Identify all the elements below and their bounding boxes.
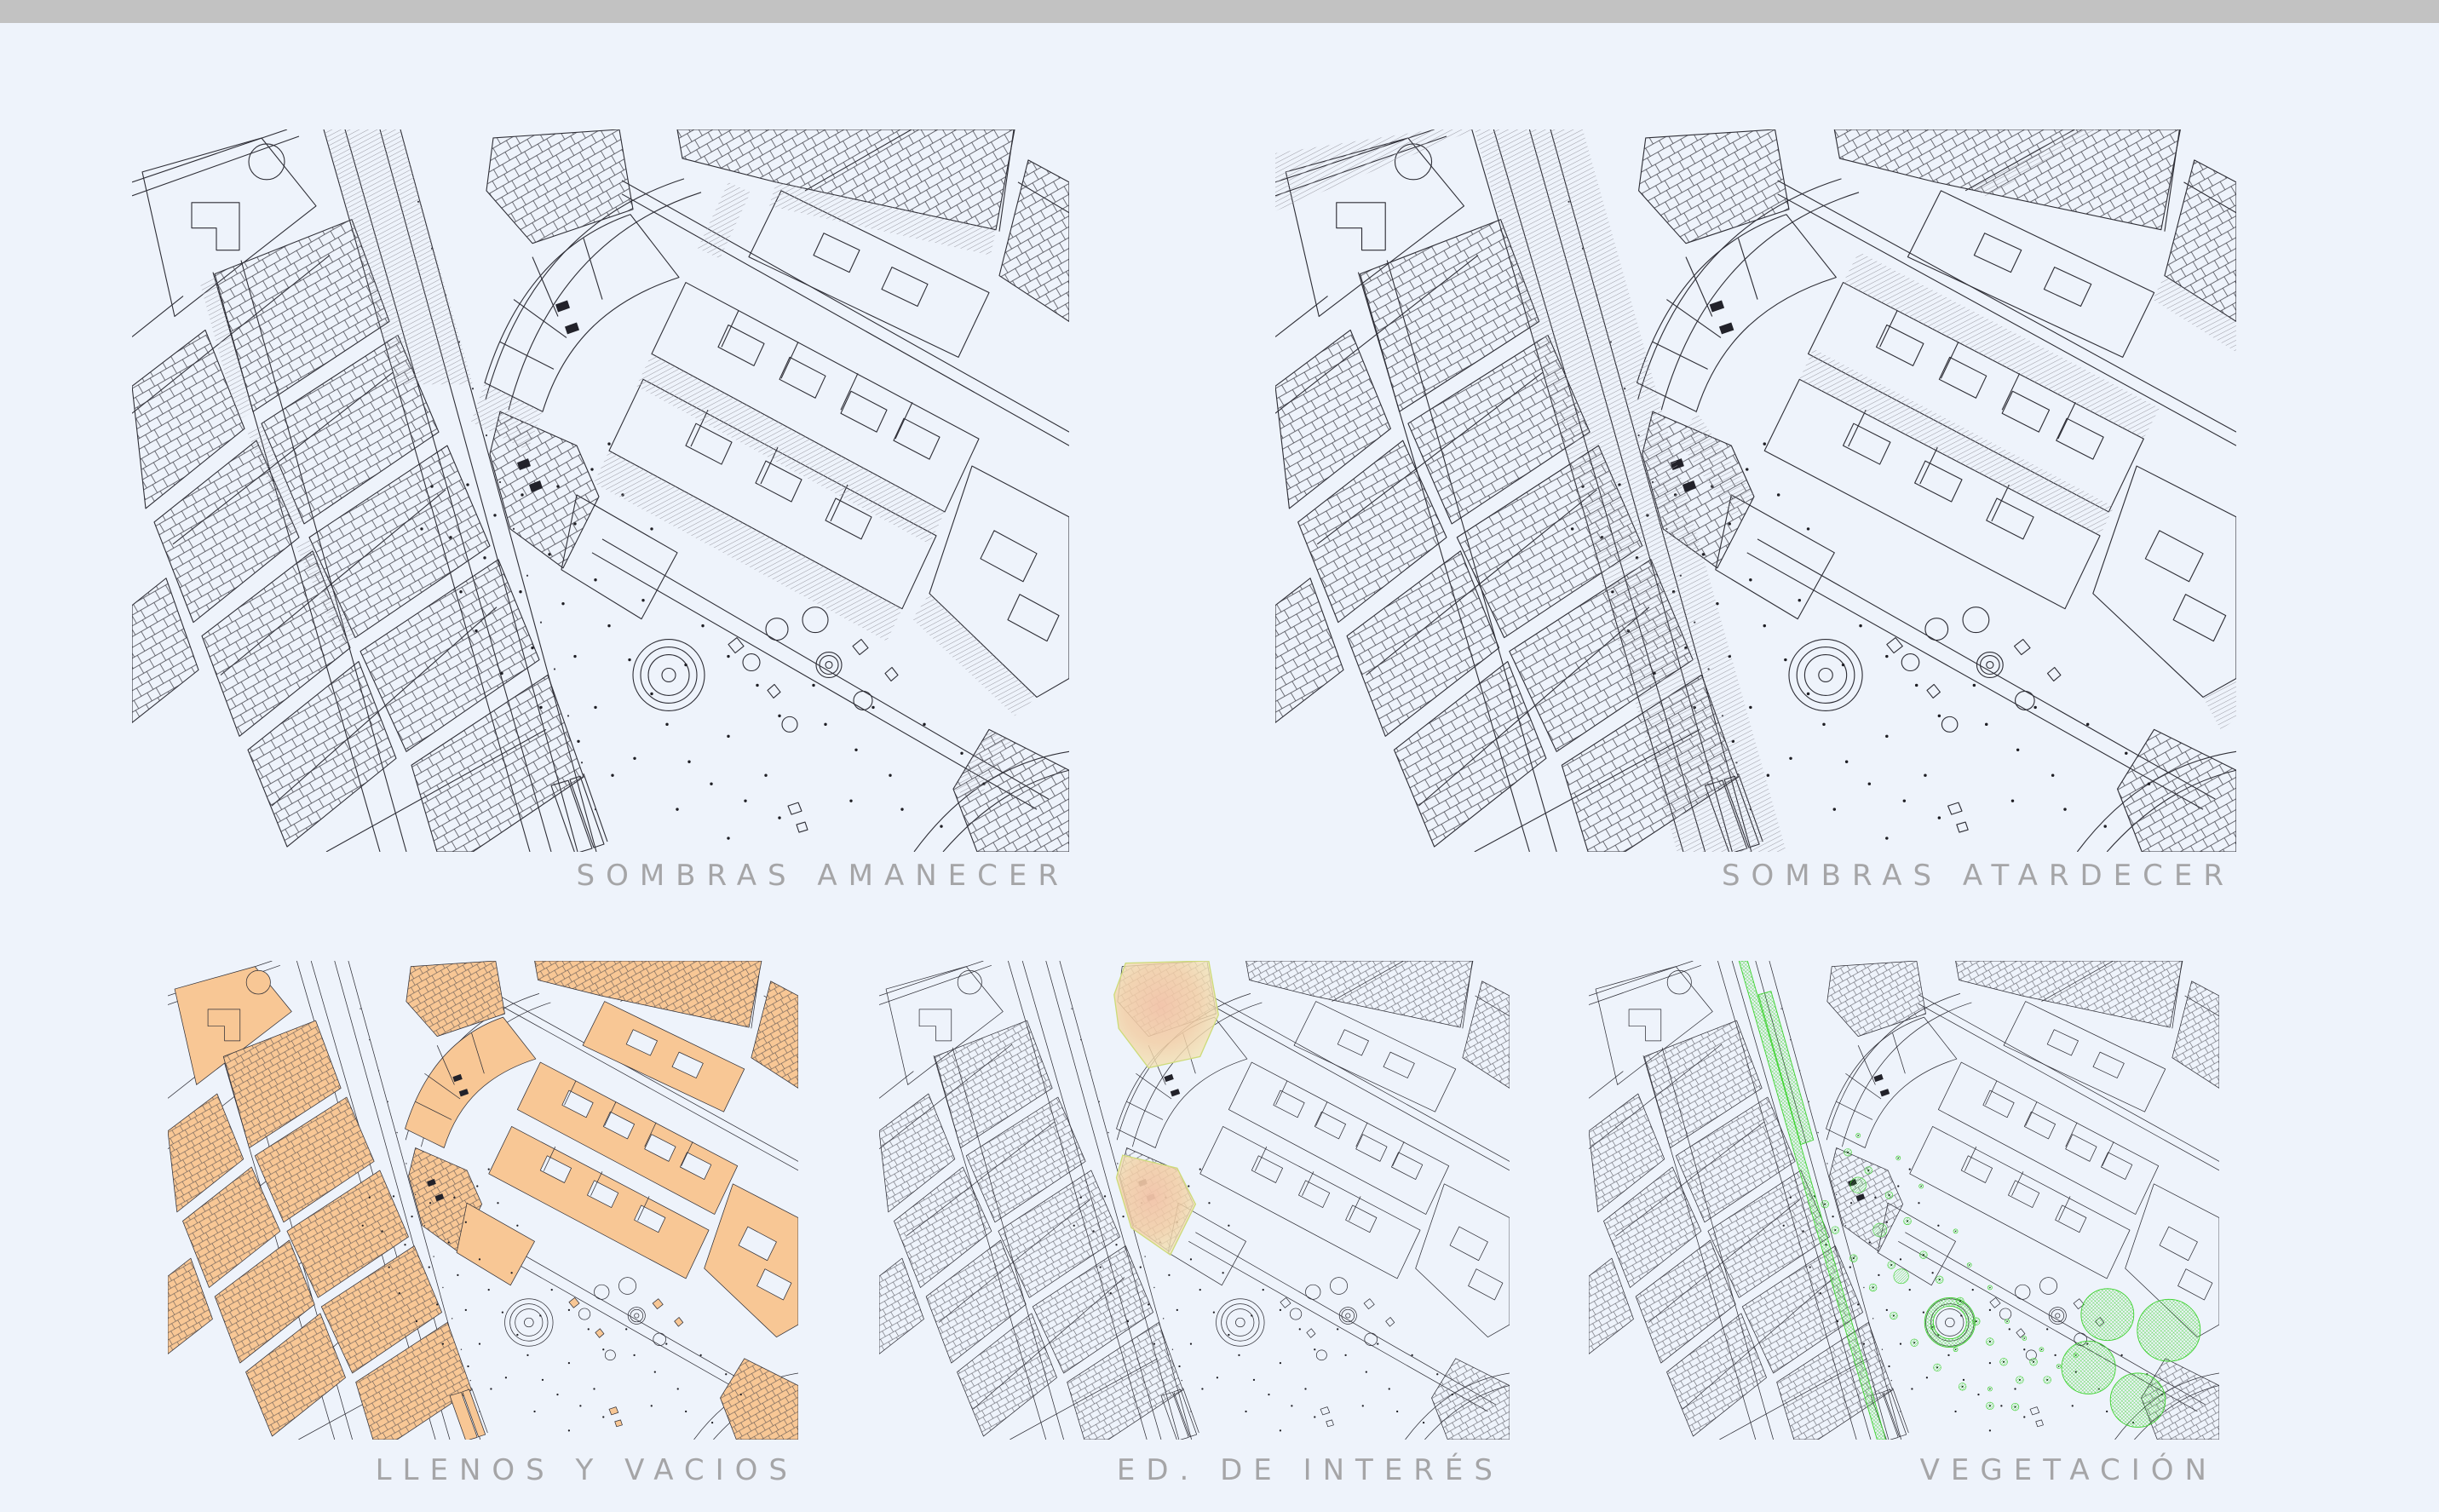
panel-title-sombras-amanecer: SOMBRAS AMANECER (576, 859, 1069, 893)
highlight-instance (1114, 961, 1218, 1255)
map-panel-sombras-amanecer (132, 129, 1069, 852)
map-panel-vegetacion (1589, 961, 2219, 1440)
analysis-sheet: SOMBRAS AMANECER SOMBRAS ATARDECER LLENO… (0, 0, 2439, 1512)
map-panel-sombras-atardecer (1275, 129, 2236, 852)
top-gray-bar (0, 0, 2439, 23)
base-map-instance (168, 961, 798, 1440)
map-panel-ed-de-interes (879, 961, 1510, 1440)
panel-title-vegetacion: VEGETACIÓN (1920, 1453, 2218, 1487)
map-panel-llenos-y-vacios (168, 961, 798, 1440)
base-map-instance (1589, 961, 2219, 1440)
panel-title-sombras-atardecer: SOMBRAS ATARDECER (1722, 859, 2235, 893)
panel-title-ed-de-interes: ED. DE INTERÉS (1117, 1453, 1504, 1487)
panel-title-llenos-y-vacios: LLENOS Y VACIOS (376, 1453, 798, 1487)
